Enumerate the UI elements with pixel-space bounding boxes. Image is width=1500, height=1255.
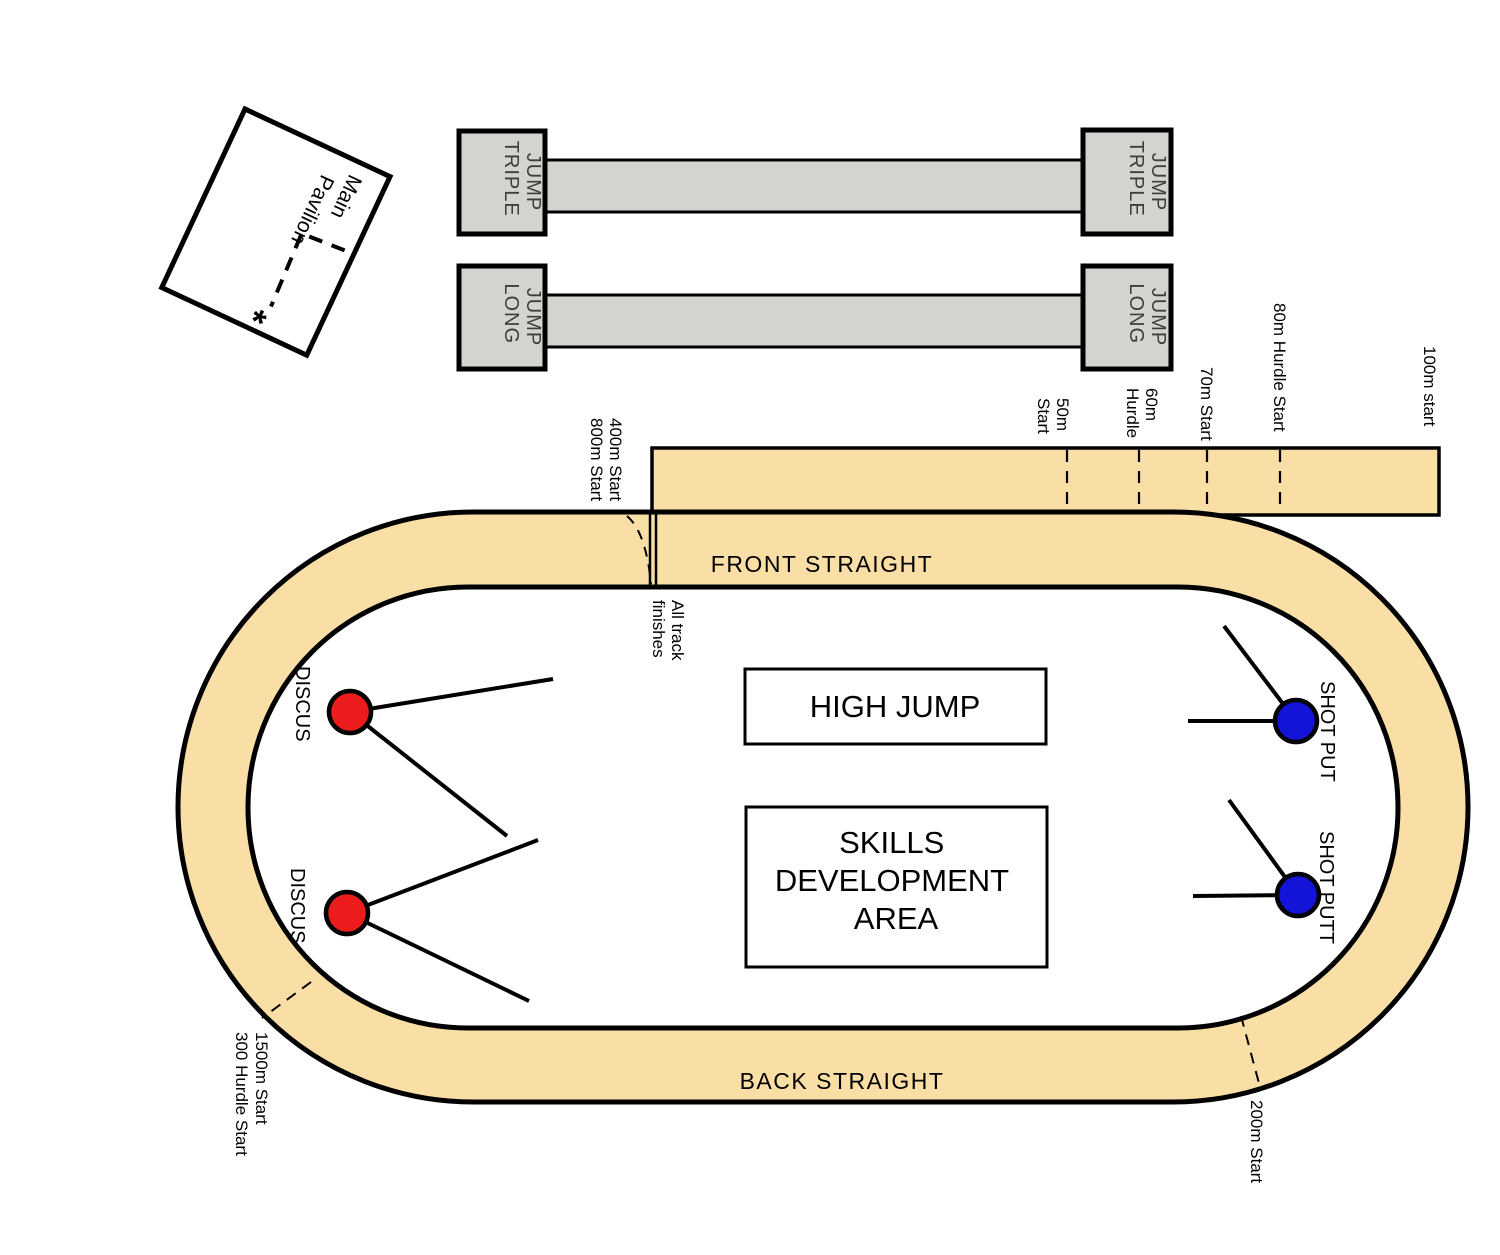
discus-circle-top <box>329 691 371 733</box>
label-50m-start: 50m Start <box>1034 398 1072 436</box>
track-layout-diagram: Main Pavilion * TRIPLE JUMP TRIPLE JUMP … <box>0 0 1500 1255</box>
shot-put-circle-bottom <box>1277 874 1319 916</box>
long-jump-runway <box>545 295 1083 347</box>
long-jump-label-left: LONG JUMP <box>500 283 544 350</box>
pavilion-outline <box>162 109 390 355</box>
high-jump-label: HIGH JUMP <box>810 689 981 724</box>
discus-circle-bottom <box>326 892 368 934</box>
triple-jump-runway <box>545 160 1083 212</box>
front-straight-label: FRONT STRAIGHT <box>711 551 933 577</box>
back-straight-label: BACK STRAIGHT <box>740 1068 945 1094</box>
triple-jump-label-left: TRIPLE JUMP <box>500 141 544 224</box>
label-100m-start: 100m start <box>1420 346 1439 427</box>
discus-label-top: DISCUS <box>291 666 313 742</box>
label-400m-800m-start: 400m Start 800m Start <box>587 418 625 506</box>
label-70m-start: 70m Start <box>1197 367 1216 441</box>
long-jump-label-right: LONG JUMP <box>1125 283 1169 350</box>
shot-put-label-top: SHOT PUT <box>1316 681 1338 782</box>
infield-areas: HIGH JUMP SKILLS DEVELOPMENT AREA <box>745 669 1047 967</box>
main-pavilion: Main Pavilion * <box>157 109 390 365</box>
sprint-straight-extension <box>652 448 1439 515</box>
shot-put-label-bottom: SHOT PUTT <box>1315 831 1337 944</box>
discus-label-bottom: DISCUS <box>286 868 308 944</box>
label-all-track-finishes: All track finishes <box>649 600 687 665</box>
label-1500m-300-hurdle-start: 1500m Start 300 Hurdle Start <box>232 1032 271 1156</box>
diagram-canvas: Main Pavilion * TRIPLE JUMP TRIPLE JUMP … <box>0 0 1500 1255</box>
triple-jump-label-right: TRIPLE JUMP <box>1125 141 1169 224</box>
label-200m-start: 200m Start <box>1247 1100 1266 1183</box>
shot-put-circle-top <box>1275 700 1317 742</box>
label-60m-hurdle: 60m Hurdle <box>1123 388 1161 438</box>
jump-runways: TRIPLE JUMP TRIPLE JUMP LONG JUMP LONG J… <box>459 130 1171 369</box>
label-80m-hurdle-start: 80m Hurdle Start <box>1270 303 1289 432</box>
